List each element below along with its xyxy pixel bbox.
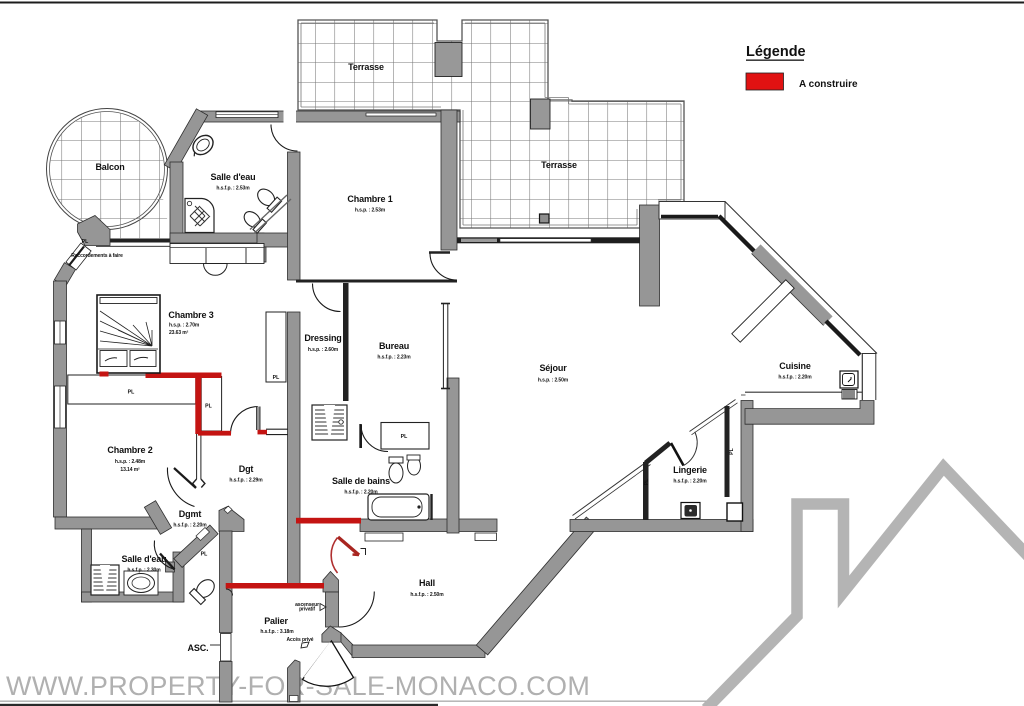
svg-text:PL: PL — [644, 478, 650, 485]
svg-text:h.s.f.p. : 3.18m: h.s.f.p. : 3.18m — [260, 629, 294, 635]
svg-text:h.s.p. : 2.48m: h.s.p. : 2.48m — [115, 459, 146, 465]
svg-text:Cuisine: Cuisine — [779, 361, 811, 371]
svg-text:h.s.f.p. : 2.50m: h.s.f.p. : 2.50m — [410, 592, 444, 598]
svg-text:h.s.f.p. : 2.53m: h.s.f.p. : 2.53m — [216, 186, 250, 192]
svg-text:Terrasse: Terrasse — [541, 160, 577, 170]
svg-text:Dgt: Dgt — [239, 464, 254, 474]
svg-text:PL: PL — [128, 390, 135, 396]
svg-text:privatif: privatif — [299, 607, 315, 613]
svg-text:Chambre 2: Chambre 2 — [107, 445, 152, 455]
svg-text:h.s.p. : 2.53m: h.s.p. : 2.53m — [355, 208, 386, 214]
svg-text:Chambre 3: Chambre 3 — [168, 310, 213, 320]
svg-text:Salle d'eau: Salle d'eau — [210, 172, 255, 182]
svg-text:23.63 m²: 23.63 m² — [169, 330, 189, 336]
svg-text:h.s.f.p. : 2.20m: h.s.f.p. : 2.20m — [778, 375, 812, 381]
svg-text:h.s.p. : 2.50m: h.s.p. : 2.50m — [538, 378, 569, 384]
svg-text:h.s.f.p. : 2.30m: h.s.f.p. : 2.30m — [127, 568, 161, 574]
svg-text:h.s.f.p. : 2.29m: h.s.f.p. : 2.29m — [229, 478, 263, 484]
svg-text:Salle de bains: Salle de bains — [332, 476, 390, 486]
svg-text:Salle d'eau: Salle d'eau — [121, 554, 166, 564]
svg-text:Séjour: Séjour — [539, 363, 567, 373]
svg-text:Terrasse: Terrasse — [348, 62, 384, 72]
svg-text:PL: PL — [205, 404, 212, 410]
svg-text:Dressing: Dressing — [304, 333, 341, 343]
svg-text:h.s.f.p. : 2.20m: h.s.f.p. : 2.20m — [344, 490, 378, 496]
svg-text:Chambre 1: Chambre 1 — [347, 194, 392, 204]
svg-text:ASC.: ASC. — [188, 643, 209, 653]
svg-text:Dgmt: Dgmt — [179, 509, 202, 519]
svg-text:PL: PL — [729, 447, 735, 454]
svg-text:13.14 m²: 13.14 m² — [120, 467, 140, 473]
svg-text:PL: PL — [401, 434, 408, 440]
svg-text:Raccordements à faire: Raccordements à faire — [71, 253, 123, 259]
svg-text:A construire: A construire — [799, 79, 858, 90]
svg-text:PL: PL — [201, 552, 208, 558]
svg-text:Bureau: Bureau — [379, 341, 409, 351]
svg-text:Légende: Légende — [746, 44, 806, 60]
svg-text:PL: PL — [273, 375, 280, 381]
svg-text:h.s.f.p. : 2.20m: h.s.f.p. : 2.20m — [173, 523, 207, 529]
svg-text:h.s.f.p. : 2.20m: h.s.f.p. : 2.20m — [673, 479, 707, 485]
svg-text:Lingerie: Lingerie — [673, 465, 707, 475]
svg-text:h.s.f.p. : 2.23m: h.s.f.p. : 2.23m — [377, 355, 411, 361]
svg-text:Hall: Hall — [419, 578, 435, 588]
svg-text:PL: PL — [82, 239, 89, 245]
svg-text:Palier: Palier — [264, 616, 288, 626]
svg-text:h.s.p. : 2.70m: h.s.p. : 2.70m — [169, 323, 200, 329]
svg-text:Accès privé: Accès privé — [287, 637, 314, 643]
svg-text:h.s.p. : 2.60m: h.s.p. : 2.60m — [308, 347, 339, 353]
svg-text:Balcon: Balcon — [95, 162, 124, 172]
